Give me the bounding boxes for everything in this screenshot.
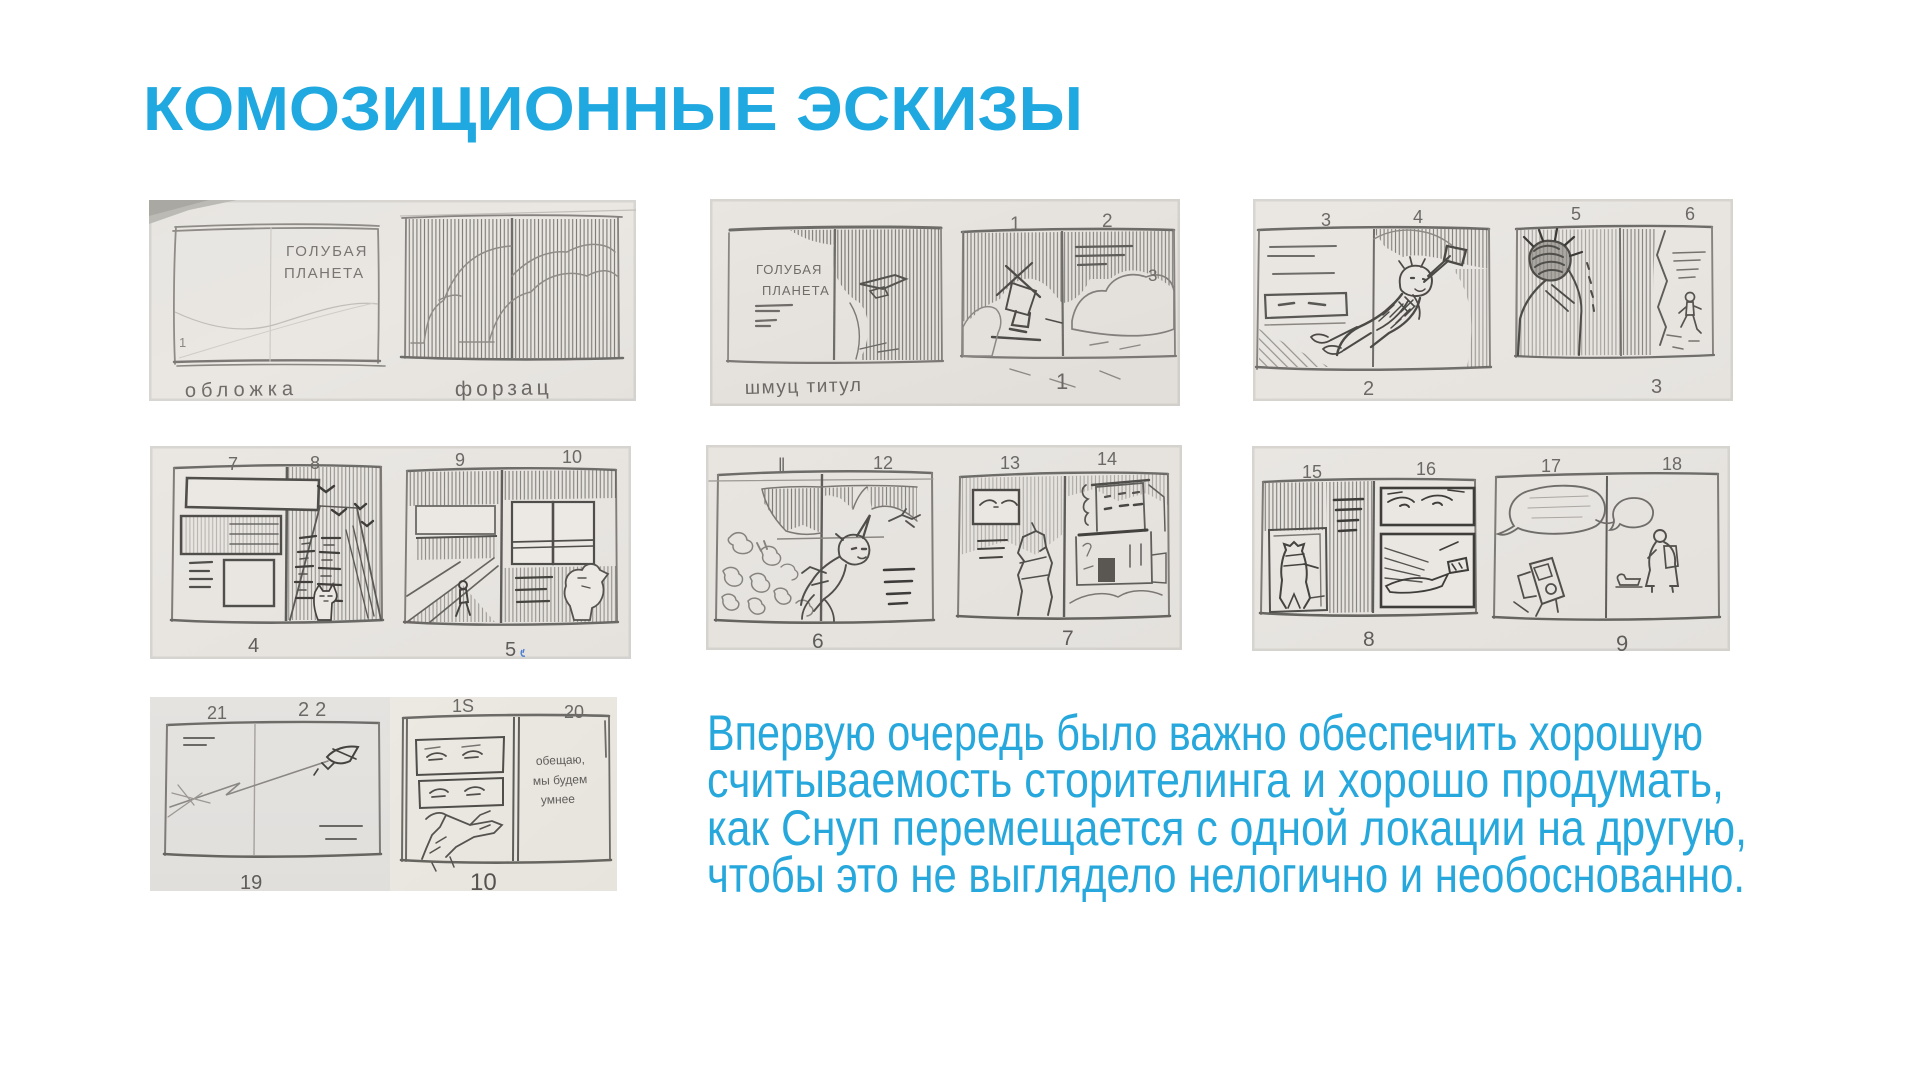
svg-text:6: 6 xyxy=(1685,204,1695,224)
svg-text:3: 3 xyxy=(1651,376,1662,398)
svg-text:14: 14 xyxy=(1097,449,1117,469)
svg-text:9: 9 xyxy=(455,450,465,470)
svg-text:16: 16 xyxy=(1416,459,1436,479)
svg-text:4: 4 xyxy=(1413,207,1423,227)
svg-text:КОМОЗИЦИОННЫЕ ЭСКИЗЫ: КОМОЗИЦИОННЫЕ ЭСКИЗЫ xyxy=(143,75,1083,144)
svg-text:ПЛАНЕТА: ПЛАНЕТА xyxy=(284,265,365,282)
svg-text:12: 12 xyxy=(873,453,893,473)
svg-text:9: 9 xyxy=(1616,631,1628,651)
svg-text:6: 6 xyxy=(812,630,824,650)
svg-text:2: 2 xyxy=(1363,378,1374,400)
svg-text:4: 4 xyxy=(248,635,259,657)
svg-text:5: 5 xyxy=(505,639,516,659)
svg-text:ПЛАНЕТА: ПЛАНЕТА xyxy=(762,283,830,298)
svg-text:8: 8 xyxy=(1363,628,1375,651)
svg-text:5: 5 xyxy=(1571,204,1581,224)
svg-text:18: 18 xyxy=(1662,454,1682,474)
svg-text:чтобы это не выглядело нелогич: чтобы это не выглядело нелогично и необо… xyxy=(707,847,1745,903)
svg-text:1: 1 xyxy=(179,335,186,350)
svg-text:1: 1 xyxy=(1056,369,1068,394)
svg-text:1: 1 xyxy=(1010,214,1021,235)
svg-text:10: 10 xyxy=(562,447,582,467)
svg-text:17: 17 xyxy=(1541,456,1561,476)
svg-text:обложка: обложка xyxy=(185,378,299,401)
svg-text:7: 7 xyxy=(228,454,238,474)
svg-text:ГОЛУБАЯ: ГОЛУБАЯ xyxy=(286,243,369,260)
svg-text:13: 13 xyxy=(1000,453,1020,473)
svg-text:7: 7 xyxy=(1062,627,1074,650)
svg-text:3: 3 xyxy=(1148,266,1157,285)
svg-text:шмуц титул: шмуц титул xyxy=(745,375,863,399)
svg-text:форзац: форзац xyxy=(455,376,553,401)
svg-text:ГОЛУБАЯ: ГОЛУБАЯ xyxy=(756,262,822,277)
